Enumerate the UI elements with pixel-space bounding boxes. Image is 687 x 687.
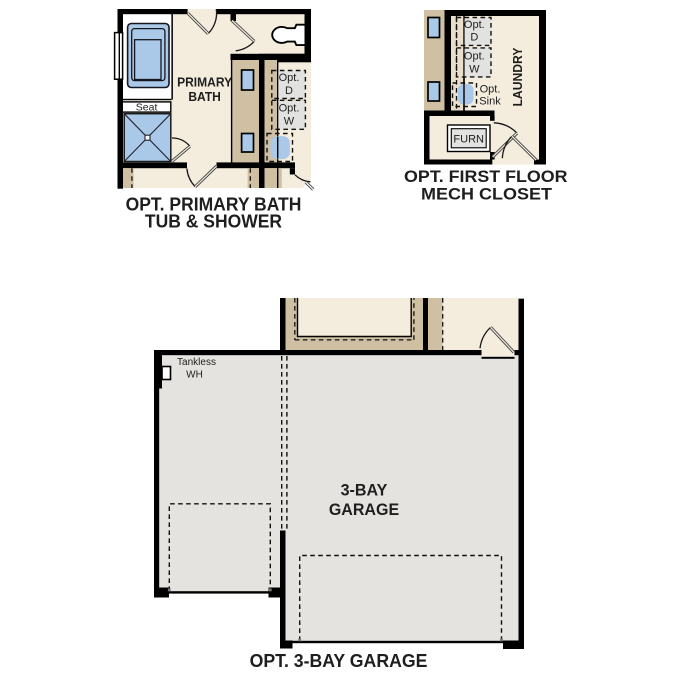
- svg-text:LAUNDRY: LAUNDRY: [511, 47, 525, 107]
- svg-text:OPT. FIRST FLOOR: OPT. FIRST FLOOR: [404, 168, 568, 186]
- svg-text:Opt.: Opt.: [464, 19, 485, 31]
- svg-text:Sink: Sink: [479, 95, 501, 107]
- svg-text:W: W: [469, 63, 480, 75]
- svg-text:OPT. 3-BAY GARAGE: OPT. 3-BAY GARAGE: [250, 651, 428, 671]
- svg-text:Opt.: Opt.: [464, 51, 485, 63]
- svg-text:Tankless: Tankless: [177, 357, 216, 368]
- svg-text:WH: WH: [186, 369, 203, 380]
- svg-text:3-BAY: 3-BAY: [341, 481, 388, 500]
- svg-text:GARAGE: GARAGE: [329, 500, 399, 519]
- svg-text:PRIMARY: PRIMARY: [177, 75, 232, 90]
- svg-text:Opt.: Opt.: [279, 102, 300, 114]
- svg-text:D: D: [470, 31, 478, 43]
- svg-text:W: W: [284, 115, 295, 127]
- svg-text:FURN: FURN: [453, 133, 484, 145]
- svg-text:BATH: BATH: [188, 89, 221, 104]
- svg-text:TUB & SHOWER: TUB & SHOWER: [145, 212, 282, 232]
- svg-text:MECH CLOSET: MECH CLOSET: [421, 185, 552, 203]
- svg-text:Opt.: Opt.: [480, 84, 501, 96]
- svg-text:Opt.: Opt.: [279, 72, 300, 84]
- svg-text:D: D: [285, 85, 293, 97]
- svg-text:Seat: Seat: [136, 102, 158, 114]
